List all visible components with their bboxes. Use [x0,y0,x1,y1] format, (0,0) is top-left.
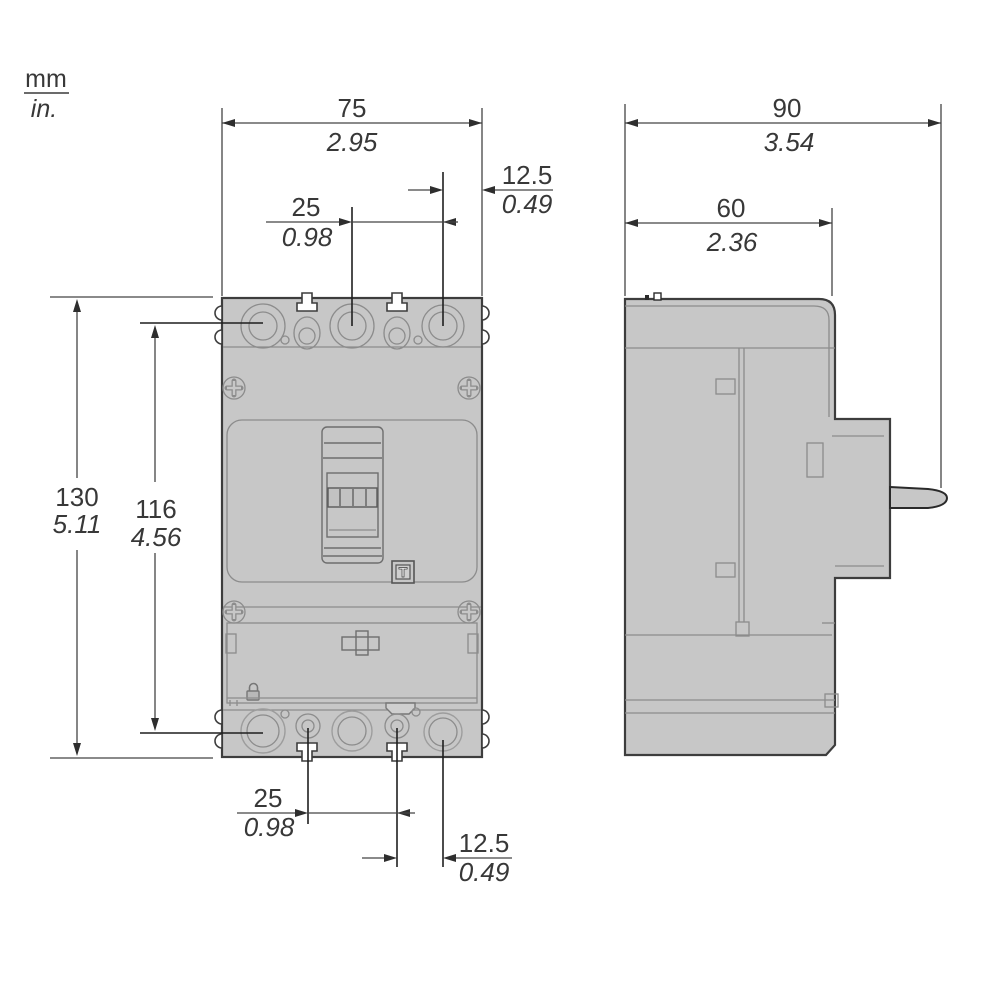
side-notch [482,306,489,320]
dim-in-value: 2.95 [326,127,378,157]
side-view [625,293,947,755]
arrowhead-right [339,218,352,226]
arrowhead-right [819,219,832,227]
technical-drawing-page: mm in. [0,0,1000,1000]
units-legend: mm in. [24,65,69,123]
units-mm-label: mm [25,65,67,93]
dim-in-value: 3.54 [764,127,815,157]
dim-in-value: 0.98 [244,812,295,842]
dim-in-value: 5.11 [53,509,102,539]
breaker-front-body [222,298,482,757]
circuit-breaker-dimension-drawing: mm in. [0,0,1000,1000]
toggle-handle-side [890,487,947,508]
dim-mm-value: 60 [717,193,746,223]
dim-in-value: 4.56 [131,522,182,552]
dim-mm-value: 25 [254,783,283,813]
dim-mm-value: 12.5 [502,160,553,190]
arrowhead-left [625,119,638,127]
side-notch [482,734,489,748]
dim-mm-value: 90 [773,93,802,123]
dim-in-value: 0.98 [282,222,333,252]
arrowhead-left [482,186,495,194]
screw-icon [223,601,245,623]
screw-icon [458,601,480,623]
arrowhead-right [295,809,308,817]
arrowhead-down [73,743,81,756]
front-view: T [215,293,489,761]
dim-mm-value: 116 [135,494,176,524]
dim-mm-value: 12.5 [459,828,510,858]
arrowhead-left [625,219,638,227]
dim-mm-value: 75 [338,93,367,123]
arrowhead-left [222,119,235,127]
arrowhead-right [384,854,397,862]
units-in-label: in. [31,95,57,123]
side-notch [215,710,222,724]
top-slot-mark [654,293,661,300]
arrowhead-right [469,119,482,127]
side-notch [215,306,222,320]
dim-mm-value: 25 [292,192,321,222]
arrowhead-up [73,299,81,312]
dimension-side-body-depth: 60 2.36 [625,193,832,296]
trip-button-label: T [399,564,408,580]
top-rib-mark [645,295,649,300]
side-notch [482,710,489,724]
dim-in-value: 2.36 [706,227,758,257]
arrowhead-right [430,186,443,194]
side-notch [215,330,222,344]
screw-icon [458,377,480,399]
trip-test-button: T [392,561,414,583]
dim-mm-value: 130 [55,482,98,512]
arrowhead-left [443,854,456,862]
screw-icon [223,377,245,399]
arrowhead-up [151,325,159,338]
arrowhead-right [928,119,941,127]
interphase-barrier-tab [386,703,415,714]
arrowhead-down [151,718,159,731]
breaker-side-body [625,299,890,755]
dim-in-value: 0.49 [502,189,553,219]
dim-in-value: 0.49 [459,857,510,887]
side-notch [482,330,489,344]
side-notch [215,734,222,748]
